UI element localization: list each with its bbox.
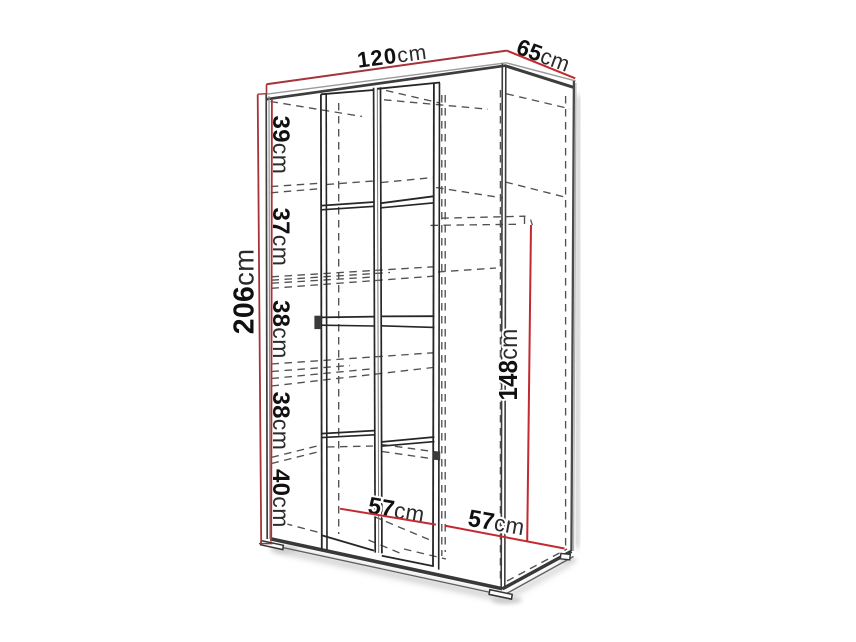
svg-text:39cm: 39cm xyxy=(267,116,294,175)
svg-text:148cm: 148cm xyxy=(494,328,523,400)
svg-text:206cm: 206cm xyxy=(228,248,260,334)
